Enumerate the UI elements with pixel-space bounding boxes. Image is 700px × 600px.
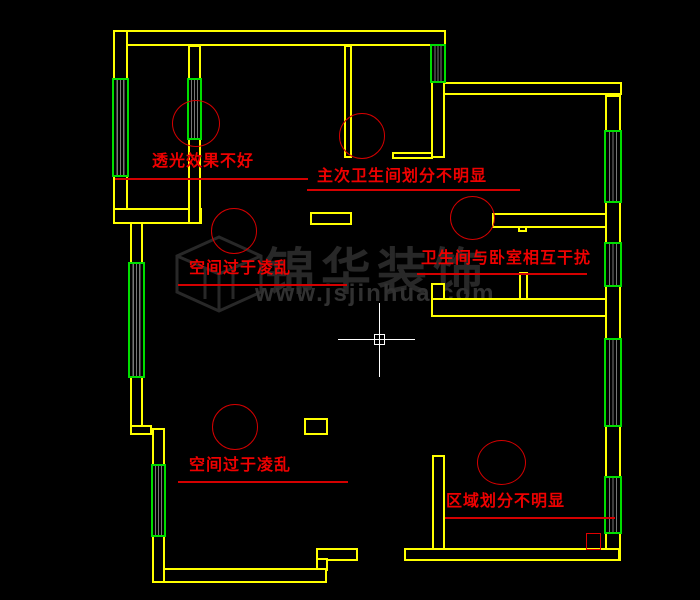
wall-bottom-left [152, 568, 327, 583]
leader-line-middle-left [178, 284, 347, 286]
highlight-circle-middle-right [450, 196, 495, 240]
highlight-box-bottom-right [586, 533, 601, 550]
annotation-label-middle-right: 卫生间与卧室相互干扰 [421, 250, 591, 267]
window-right-4 [604, 476, 622, 534]
crosshair-pickbox [374, 334, 385, 345]
highlight-circle-bottom-right [477, 440, 526, 485]
leader-line-middle-right [417, 273, 587, 275]
leader-line-bottom-right [445, 517, 615, 519]
wall-bath2-bottom [431, 298, 607, 317]
window-left-middle [128, 262, 145, 378]
window-right-2 [604, 242, 622, 287]
wall-bottomright-interior [432, 455, 445, 550]
column-block-lower [304, 418, 328, 435]
annotation-label-top-left: 透光效果不好 [152, 153, 254, 170]
wall-bedroom-top [443, 82, 622, 95]
highlight-circle-top-left [172, 100, 220, 147]
wall-door-notch [518, 226, 527, 232]
column-block-upper [310, 212, 352, 225]
leader-line-top-middle [307, 189, 520, 191]
window-left-upper [112, 78, 129, 177]
wall-bedroom-bottom [492, 213, 607, 228]
annotation-label-bottom-left: 空间过于凌乱 [189, 457, 291, 474]
annotation-label-top-middle: 主次卫生间划分不明显 [317, 168, 487, 185]
window-right-3 [604, 338, 622, 427]
highlight-circle-middle-left [211, 208, 257, 254]
wall-bath-bottom [392, 152, 433, 159]
wall-top-outer [113, 30, 446, 46]
window-bath-right [430, 44, 446, 83]
leader-line-bottom-left [178, 481, 348, 483]
wall-left-jog [130, 425, 152, 435]
leader-line-top-left [115, 178, 308, 180]
cad-canvas[interactable]: 锦华装饰 www.jsjinhua.com 透光效果不好 主次卫生间划分不明显 … [0, 0, 700, 600]
annotation-label-middle-left: 空间过于凌乱 [189, 260, 291, 277]
highlight-circle-top-middle [339, 113, 385, 159]
wall-door-jamb [519, 272, 528, 300]
annotation-label-bottom-right: 区域划分不明显 [446, 493, 565, 510]
window-right-1 [604, 130, 622, 203]
window-left-lower [151, 464, 166, 537]
highlight-circle-bottom-left [212, 404, 258, 450]
